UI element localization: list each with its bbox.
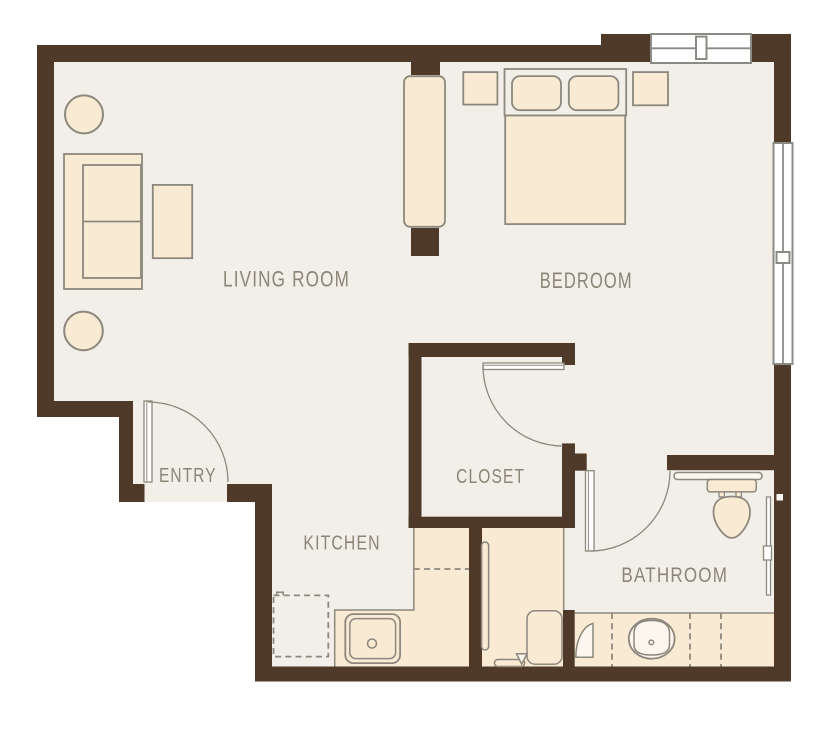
svg-text:KITCHEN: KITCHEN — [303, 532, 380, 555]
svg-text:CLOSET: CLOSET — [456, 465, 525, 488]
svg-text:BEDROOM: BEDROOM — [540, 268, 633, 293]
svg-text:ENTRY: ENTRY — [159, 464, 217, 487]
svg-text:BATHROOM: BATHROOM — [621, 563, 728, 587]
svg-text:LIVING ROOM: LIVING ROOM — [223, 267, 350, 292]
